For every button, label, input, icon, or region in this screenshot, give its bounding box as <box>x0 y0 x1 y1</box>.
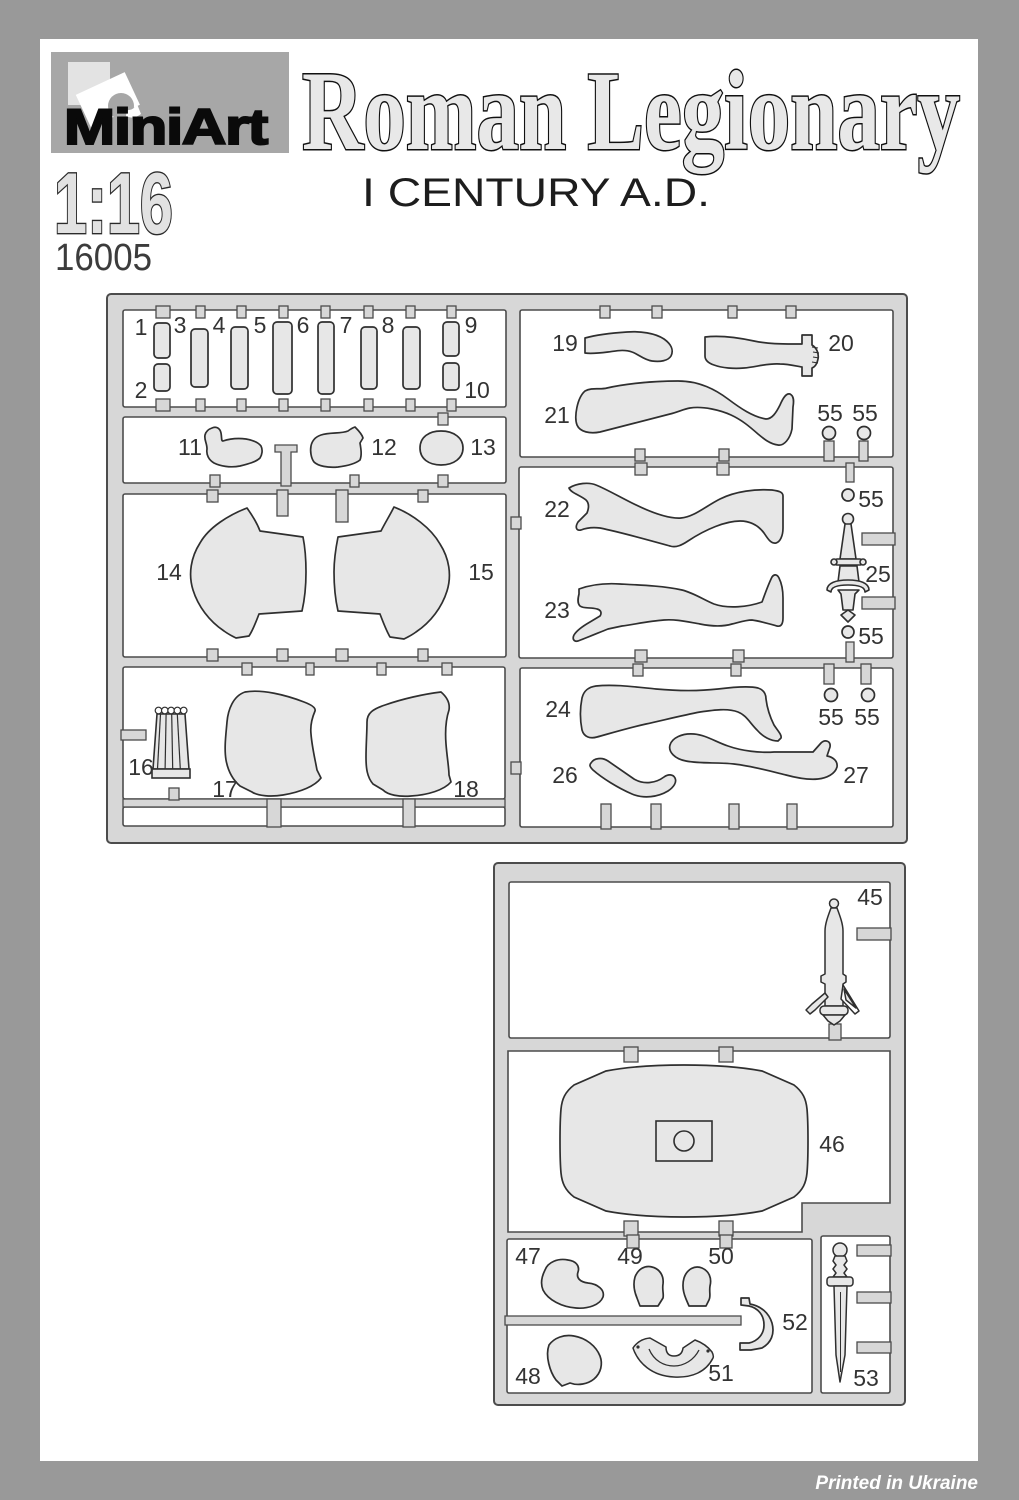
svg-text:14: 14 <box>156 559 182 585</box>
svg-text:2: 2 <box>135 377 148 403</box>
svg-text:24: 24 <box>545 696 571 722</box>
svg-text:19: 19 <box>552 330 578 356</box>
svg-text:21: 21 <box>544 402 570 428</box>
svg-text:17: 17 <box>212 776 238 802</box>
svg-text:7: 7 <box>340 312 353 338</box>
svg-text:16: 16 <box>128 754 154 780</box>
svg-text:23: 23 <box>544 597 570 623</box>
svg-text:52: 52 <box>782 1309 808 1335</box>
svg-text:6: 6 <box>297 312 310 338</box>
svg-text:11: 11 <box>178 434 202 460</box>
svg-text:15: 15 <box>468 559 494 585</box>
svg-text:50: 50 <box>708 1243 734 1269</box>
svg-text:25: 25 <box>865 561 891 587</box>
svg-text:51: 51 <box>708 1360 734 1386</box>
svg-text:13: 13 <box>470 434 496 460</box>
svg-text:I CENTURY A.D.: I CENTURY A.D. <box>362 171 710 215</box>
svg-text:MiniArt: MiniArt <box>64 99 269 155</box>
svg-text:55: 55 <box>817 400 843 426</box>
svg-text:20: 20 <box>828 330 854 356</box>
svg-text:55: 55 <box>818 704 844 730</box>
svg-text:Printed in Ukraine: Printed in Ukraine <box>815 1473 978 1494</box>
svg-text:8: 8 <box>382 312 395 338</box>
svg-text:4: 4 <box>213 312 226 338</box>
svg-text:48: 48 <box>515 1363 541 1389</box>
svg-text:Roman Legionary: Roman Legionary <box>302 49 960 174</box>
svg-text:5: 5 <box>254 312 267 338</box>
svg-text:55: 55 <box>854 704 880 730</box>
svg-text:53: 53 <box>853 1365 879 1391</box>
svg-text:55: 55 <box>852 400 878 426</box>
svg-text:22: 22 <box>544 496 570 522</box>
svg-text:9: 9 <box>465 312 478 338</box>
svg-text:10: 10 <box>464 377 490 403</box>
svg-text:49: 49 <box>617 1243 643 1269</box>
svg-text:55: 55 <box>858 486 884 512</box>
svg-text:26: 26 <box>552 762 578 788</box>
svg-text:18: 18 <box>453 776 479 802</box>
svg-text:47: 47 <box>515 1243 541 1269</box>
svg-text:1: 1 <box>135 314 148 340</box>
svg-text:16005: 16005 <box>55 237 152 279</box>
svg-text:55: 55 <box>858 623 884 649</box>
svg-text:12: 12 <box>371 434 397 460</box>
svg-text:27: 27 <box>843 762 869 788</box>
svg-text:46: 46 <box>819 1131 845 1157</box>
svg-text:3: 3 <box>174 312 187 338</box>
svg-text:45: 45 <box>857 884 883 910</box>
